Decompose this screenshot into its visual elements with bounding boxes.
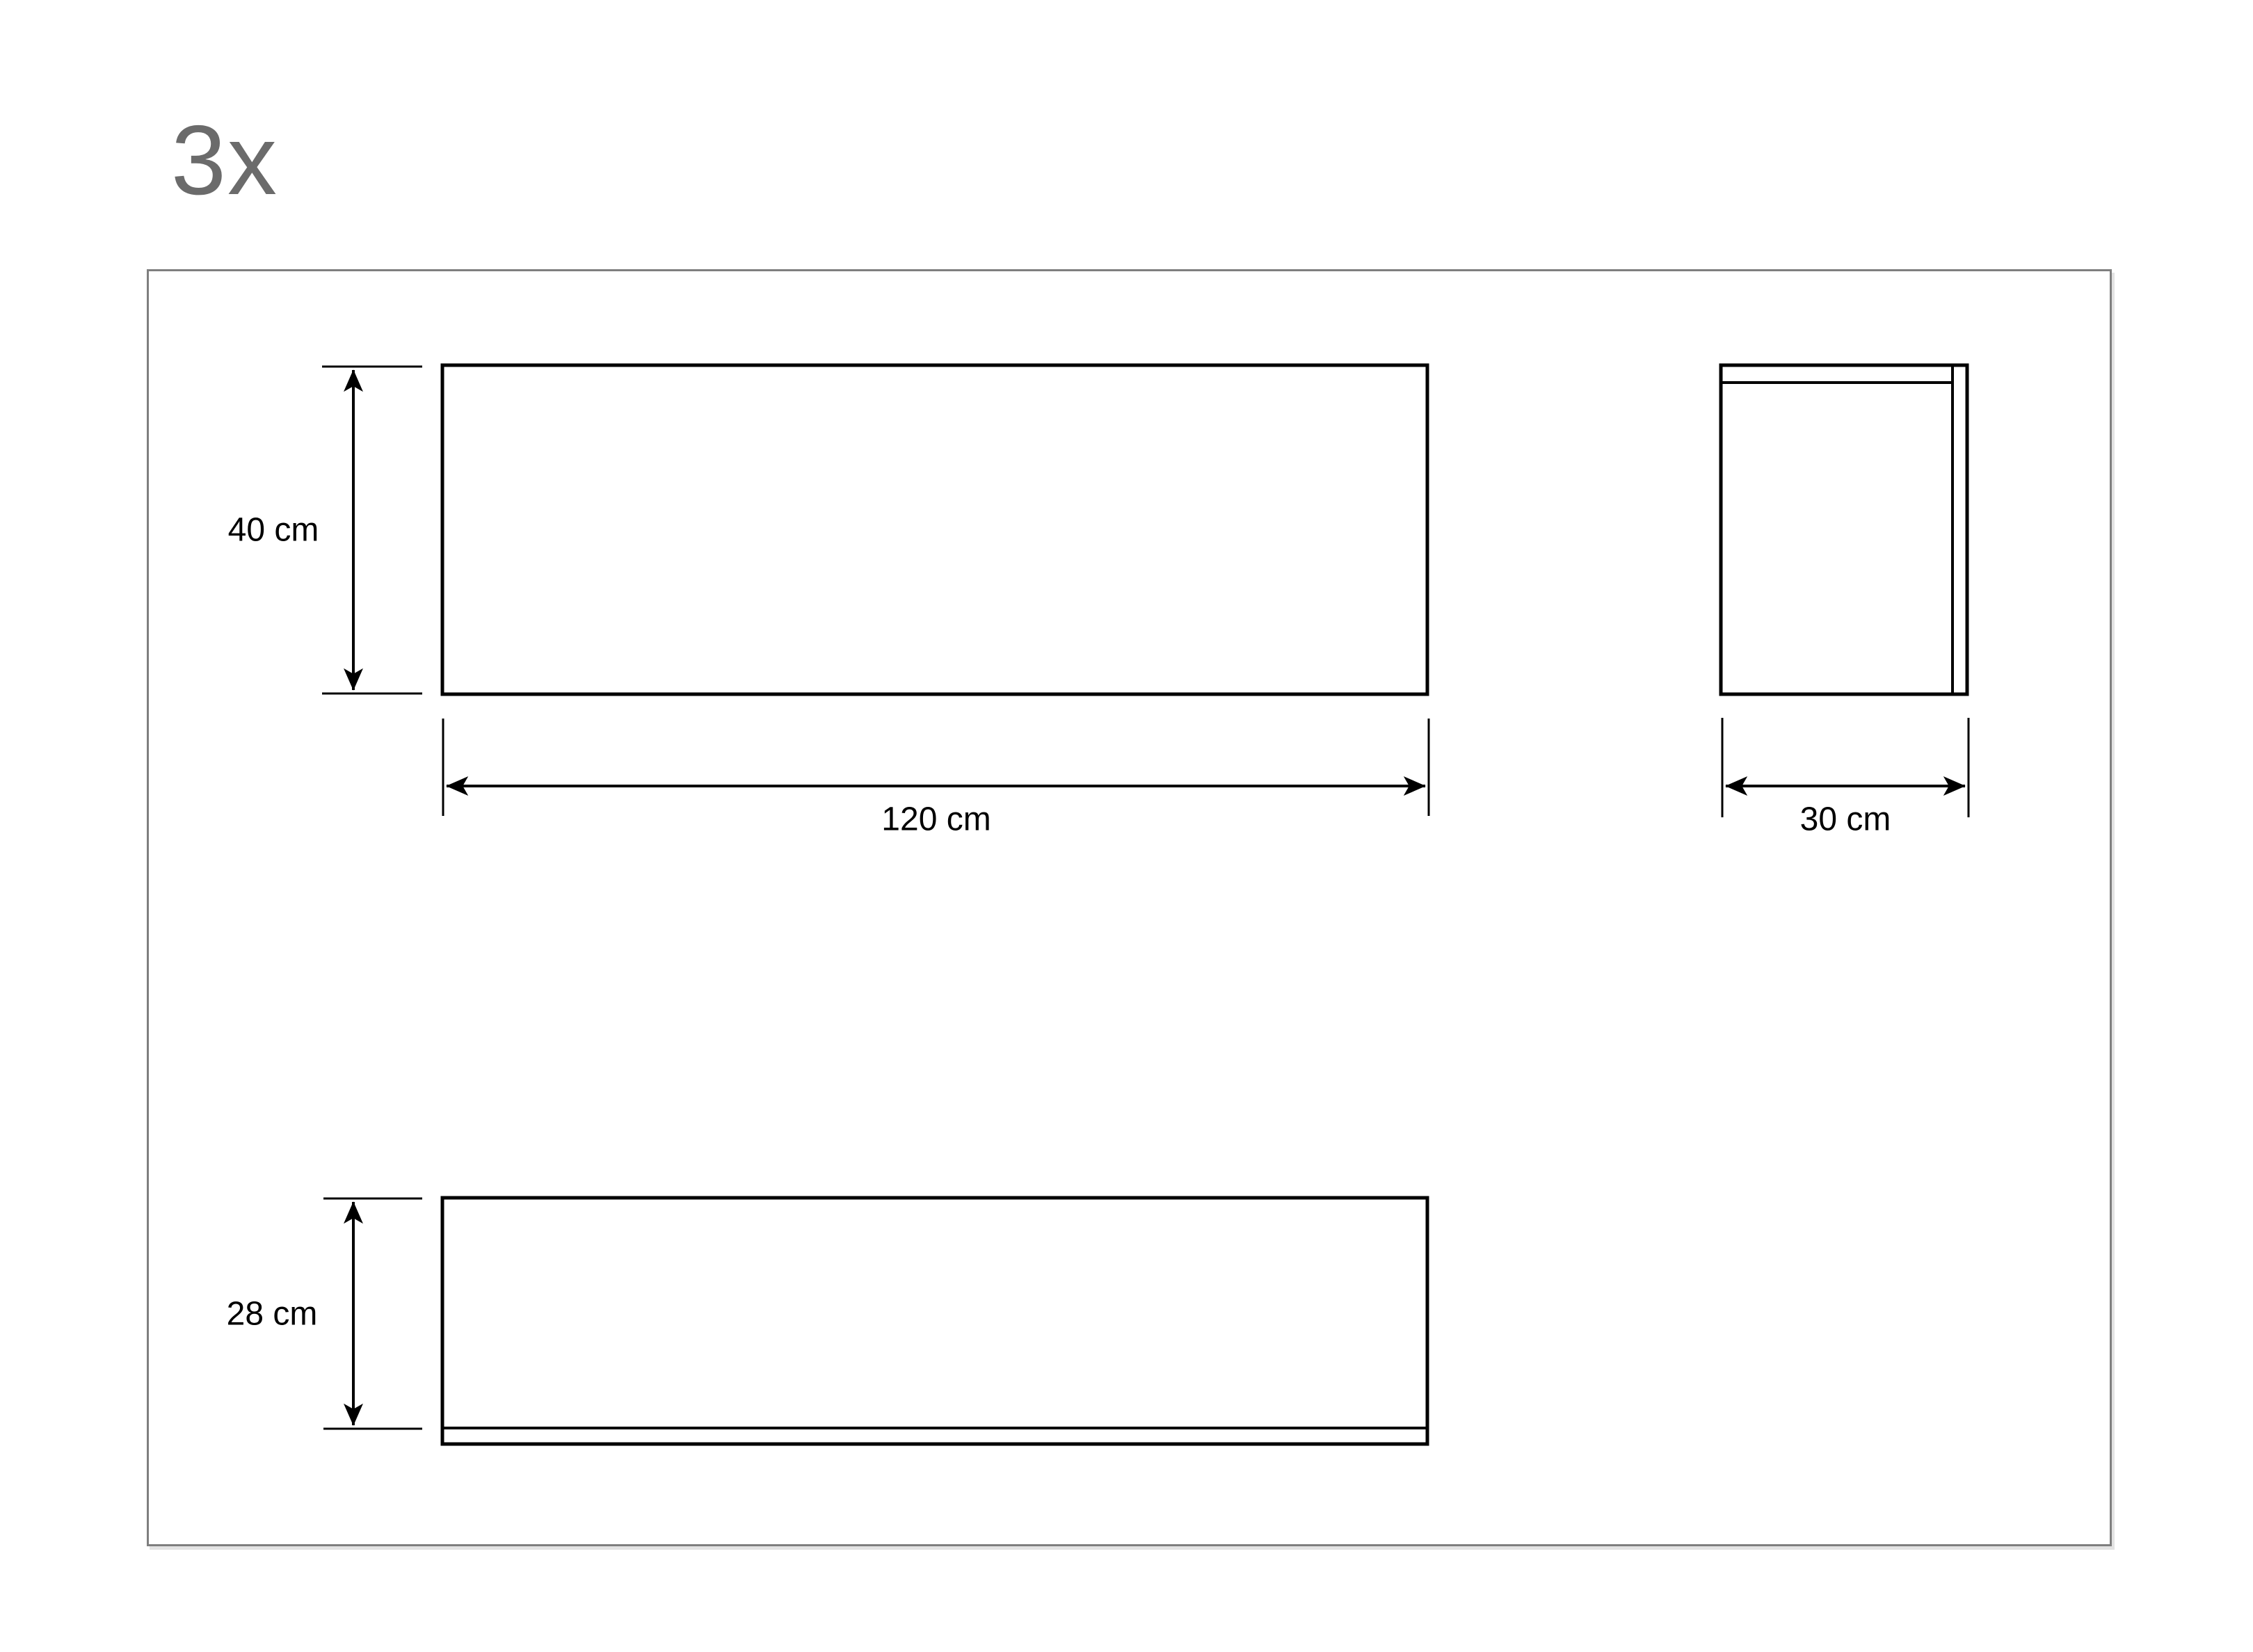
front-view [442, 365, 1427, 694]
dimension-top-depth [323, 1198, 422, 1429]
front-view-outline [442, 365, 1427, 694]
dimension-label-front-height: 40 cm [228, 511, 319, 550]
dimension-label-side-width: 30 cm [1800, 801, 1891, 839]
technical-drawing [0, 0, 2253, 1652]
dimension-label-top-depth: 28 cm [227, 1295, 318, 1333]
dimension-label-front-width: 120 cm [881, 801, 991, 839]
side-view-outline [1721, 365, 1967, 694]
dimension-front-height [322, 367, 422, 693]
top-view [442, 1198, 1427, 1444]
side-view [1721, 365, 1967, 694]
top-view-outline [442, 1198, 1427, 1444]
